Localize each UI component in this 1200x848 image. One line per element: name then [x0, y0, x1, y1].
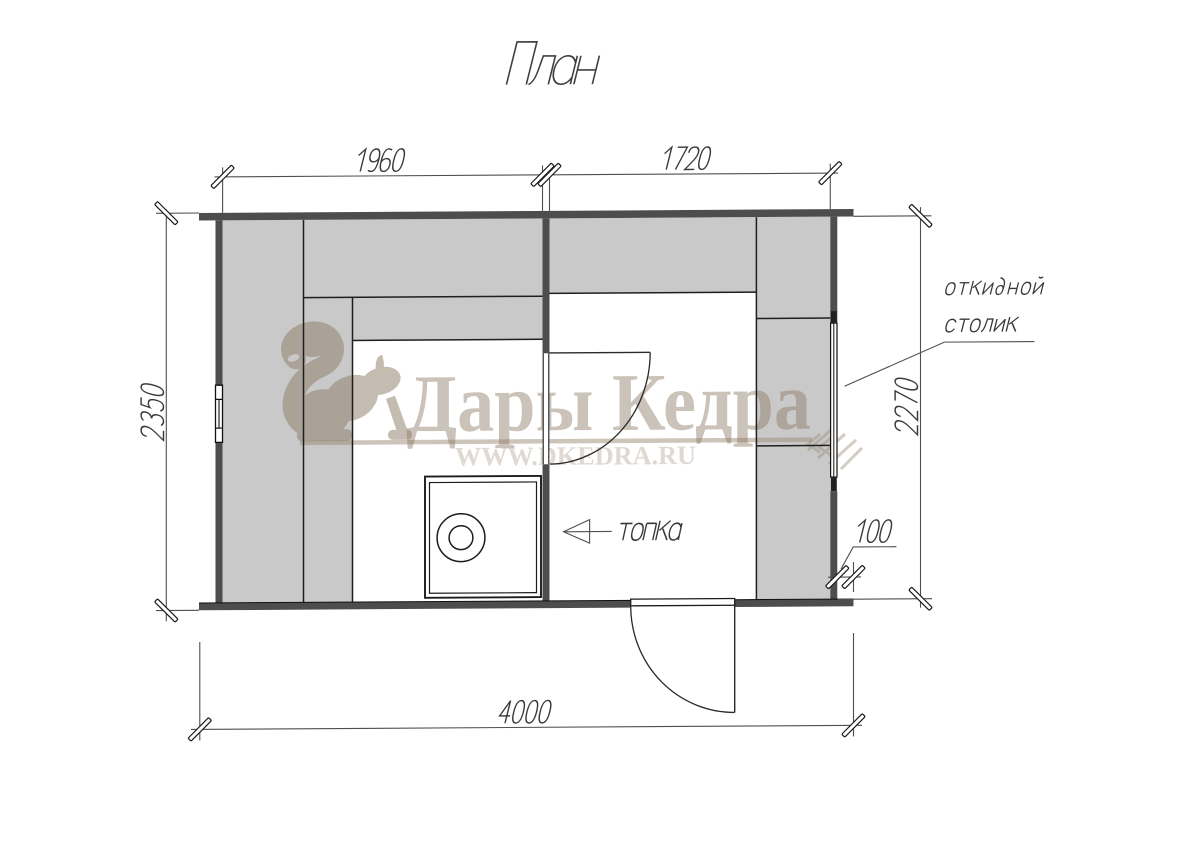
svg-text:Дары Кедра: Дары Кедра	[406, 356, 811, 449]
svg-text:WWW.DKEDRA.RU: WWW.DKEDRA.RU	[455, 440, 696, 471]
